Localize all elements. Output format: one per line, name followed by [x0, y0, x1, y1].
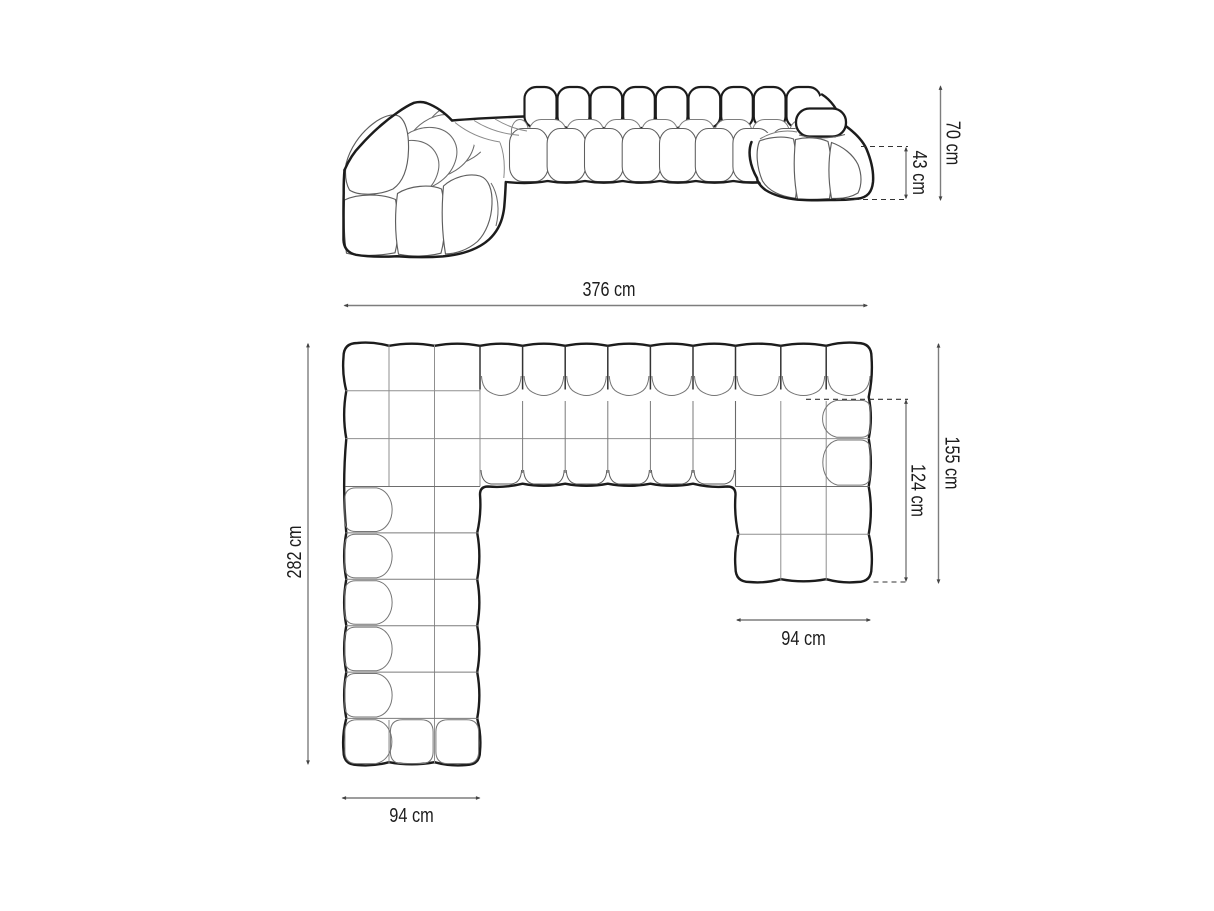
- svg-text:43 cm: 43 cm: [908, 150, 931, 195]
- svg-text:282 cm: 282 cm: [283, 526, 306, 579]
- svg-text:94 cm: 94 cm: [781, 627, 826, 650]
- svg-text:70 cm: 70 cm: [942, 121, 965, 166]
- svg-text:124 cm: 124 cm: [907, 464, 930, 517]
- svg-text:94 cm: 94 cm: [389, 804, 434, 827]
- svg-text:155 cm: 155 cm: [941, 437, 964, 490]
- svg-text:376 cm: 376 cm: [583, 278, 636, 301]
